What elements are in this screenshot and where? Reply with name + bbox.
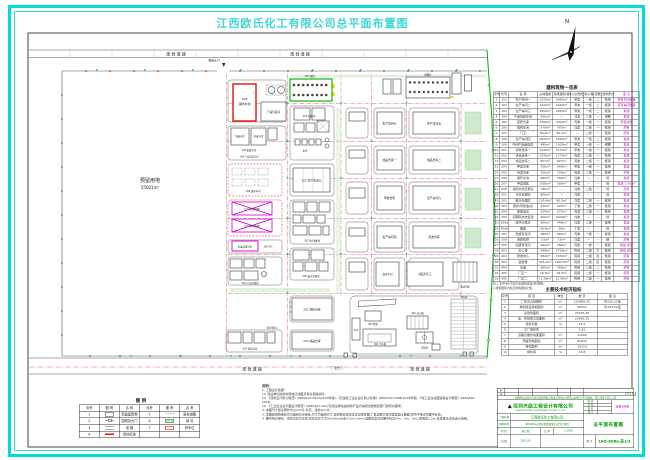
maintenance-block: 106 维修车间 xyxy=(232,168,268,193)
drawing-number: 18Q-806a-总1/3 xyxy=(596,435,635,449)
workshop-103: 103 生产车间三 xyxy=(293,168,330,192)
legend-no: 7 xyxy=(139,425,159,432)
svg-text:303 锅炉房: 303 锅炉房 xyxy=(302,114,316,118)
svg-text:生产车间七: 生产车间七 xyxy=(383,122,397,126)
road-label-top: 规 划 道 路 xyxy=(290,51,310,57)
north-label: N xyxy=(565,19,569,25)
svg-text:401 办公楼: 401 办公楼 xyxy=(411,311,424,315)
svg-text:丙类仓库: 丙类仓库 xyxy=(428,235,439,239)
svg-text:302 废水处理站: 302 废水处理站 xyxy=(302,274,320,278)
notes-panel: 说明: 1. 工程设计依据:(1) 建设单位提供的用地红线图及有关基础资料。(2… xyxy=(262,383,482,421)
gate-top-marker xyxy=(222,63,226,67)
equipment-cluster: 305 雨水收集池 xyxy=(293,202,330,243)
svg-text:成品仓库二: 成品仓库二 xyxy=(427,158,441,162)
svg-text:停车场: 停车场 xyxy=(461,295,468,299)
svg-text:301 污水处理站: 301 污水处理站 xyxy=(241,281,259,285)
list-item: (2) 《建筑设计防火规范》GB50016-2014(2018年版),《石油化工… xyxy=(262,397,482,405)
table-row: 10绿化率%18.8 xyxy=(501,350,628,356)
svg-text:104 产品包装车间: 104 产品包装车间 xyxy=(240,155,260,159)
legend-name: 原有道路 xyxy=(180,411,200,418)
production-grid: 生产车间七 生产车间五 成品仓库一 成品仓库二 甲类仓库 生产车间六 生产车间四… xyxy=(376,112,477,289)
svg-text:202 成品仓库: 202 成品仓库 xyxy=(303,339,321,343)
svg-text:208: 208 xyxy=(242,97,248,101)
legend-no: 4 xyxy=(79,431,99,438)
svg-text:404 汽车衡: 404 汽车衡 xyxy=(374,342,387,346)
indicators-table: 序号项 目单位数 值备 注1厂区总占地面积m²150806.45约226.21亩… xyxy=(501,294,628,356)
list-item: 4. 图中所示绿化、停车位仅为示意,停车位尺寸为3m×6m(大车3.5m×10m… xyxy=(262,417,482,421)
parking-symbol xyxy=(160,425,180,432)
road-label-top-left: 规 划 道 路 xyxy=(166,51,186,57)
svg-text:成品仓库一: 成品仓库一 xyxy=(383,158,397,162)
company-logo-icon: ▲ xyxy=(508,403,512,409)
svg-text:105 配套仓库: 105 配套仓库 xyxy=(242,148,257,152)
stamp-cell: 出图专用章 xyxy=(612,400,635,415)
svg-text:篮球场: 篮球场 xyxy=(421,346,428,350)
no-label: 图 号 xyxy=(584,435,597,449)
legend-no: 1 xyxy=(79,411,99,418)
svg-text:106 维修车间: 106 维修车间 xyxy=(246,189,261,193)
svg-text:306 307: 306 307 xyxy=(263,246,273,249)
legend-title: 图 例 xyxy=(79,397,203,404)
svg-text:103 生产车间三: 103 生产车间三 xyxy=(301,179,321,183)
road-label-bottom-2: 规 划 道 路 xyxy=(410,366,430,372)
legend-no: 5 xyxy=(139,411,159,418)
legend-name: 新建建筑物 xyxy=(119,411,139,418)
narrow-col-buildings xyxy=(349,112,365,272)
boiler-cluster: 303 锅炉房 泵房 xyxy=(294,108,329,153)
drawing-name: 总平面布置图 xyxy=(584,414,635,436)
legend-empty xyxy=(180,431,200,438)
svg-text:203 成品仓库: 203 成品仓库 xyxy=(243,347,258,351)
packing-building: 产品包装间 xyxy=(261,102,286,121)
hazwaste-warehouses: 危废仓库 危废仓库 105 配套仓库 104 产品包装车间 xyxy=(231,128,277,159)
svg-text:生产车间六: 生产车间六 xyxy=(427,196,441,200)
svg-text:甲类仓库: 甲类仓库 xyxy=(384,196,395,200)
svg-text:泵房: 泵房 xyxy=(303,149,308,153)
svg-text:维修车间: 维修车间 xyxy=(382,272,393,276)
warehouse-201: 201 原料仓库 xyxy=(289,298,332,320)
gate-top-label: 预留大门 xyxy=(208,59,219,63)
reserved-workshops: 生产车间(预留) 生产车间(预留) xyxy=(232,202,272,232)
blank-cell xyxy=(541,435,585,449)
table-row: 1101生产车间一1220m²2440m²甲类一级二框架原有车间改造 xyxy=(493,97,639,103)
svg-text:储罐区: 储罐区 xyxy=(425,73,433,77)
campus: 402 403 食堂 404 汽车衡 401 办公楼 篮球场 xyxy=(352,295,476,350)
table-row: 2102生产车间二1220m²2440m²甲类一级二框架原有车间改造 xyxy=(493,103,639,109)
wastewater-cluster: 302 废水处理站 xyxy=(293,250,328,278)
svg-text:消防水池: 消防水池 xyxy=(238,101,250,106)
building-list-panel: 建构筑物一览表 序号代号名 称占地面积建筑面积/容积火灾危险性耐火等级层数结构形… xyxy=(493,84,631,291)
legend-name: 围墙及大门 xyxy=(119,418,139,425)
warehouse-202: 202 成品仓库 xyxy=(292,332,332,349)
date-label: 日 期 xyxy=(498,435,512,449)
legend-name: 用地红线 xyxy=(119,431,139,438)
notes-lines: 1. 工程设计依据:(1) 建设单位提供的用地红线图及有关基础资料。(2) 《建… xyxy=(262,389,482,421)
legend-panel: 图 例 序号 图 例 名 称 序号 图 例 名 称 1 新建建筑物 5 原有道路… xyxy=(79,397,203,438)
company-subname: SHENZHEN TIANLI ENGINEERING DESIGN CO.,L… xyxy=(515,409,565,412)
old-road-symbol xyxy=(160,411,180,418)
legend-table: 序号 图 例 名 称 序号 图 例 名 称 1 新建建筑物 5 原有道路 2 围… xyxy=(79,405,200,438)
new-building-symbol xyxy=(99,411,119,418)
svg-text:电动车棚: 电动车棚 xyxy=(461,285,471,289)
building-list-title: 建构筑物一览表 xyxy=(493,84,631,91)
tank-farm: 207 罐区 xyxy=(290,74,335,101)
indicators-title: 主要技术经济指标 xyxy=(501,286,626,293)
sewage-cluster: 301 污水处理站 xyxy=(230,259,267,285)
notes-title: 说明: xyxy=(262,383,482,388)
date-value: 2021.06 xyxy=(511,435,542,449)
legend-name: 停车位 xyxy=(180,425,200,432)
svg-text:危废仓库: 危废仓库 xyxy=(235,134,245,138)
legend-name: 道 路 xyxy=(119,425,139,432)
svg-text:生产车间五: 生产车间五 xyxy=(427,122,441,126)
hazwaste-storage: 危废品暂存区 306 307 xyxy=(232,241,273,251)
svg-text:成品仓库三: 成品仓库三 xyxy=(419,272,432,276)
north-arrow-icon xyxy=(552,23,583,64)
water-tanks xyxy=(266,85,286,95)
svg-text:危废仓库: 危废仓库 xyxy=(254,134,264,138)
reserve-area: 55601m² xyxy=(141,185,160,190)
svg-text:403 食堂: 403 食堂 xyxy=(368,322,378,326)
title-block: ▲ ▲ 2021.6 该图纸及其设计内容归深圳天励工程设计有限公司所有,未经许可… xyxy=(497,388,634,448)
legend-empty xyxy=(139,431,159,438)
company-cell: ▲深圳天励工程设计有限公司 SHENZHEN TIANLI ENGINEERIN… xyxy=(498,400,585,415)
road-symbol xyxy=(99,425,119,432)
building-list-table: 序号代号名 称占地面积建筑面积/容积火灾危险性耐火等级层数结构形式备 注1101… xyxy=(493,92,640,283)
table-row: 33406门卫二12.96m²12.96m²民用二级一框架原有 xyxy=(493,276,639,282)
svg-text:产品包装间: 产品包装间 xyxy=(267,110,280,114)
svg-text:雨水排放口: 雨水排放口 xyxy=(267,326,278,330)
gate-bottom-label: 厂区大门 xyxy=(331,366,342,370)
drawing-sheet: 江西欧氏化工有限公司总平面布置图 规 划 道 路 规 划 道 路 xyxy=(0,0,650,460)
legend-no: 3 xyxy=(79,425,99,432)
svg-text:207 罐区: 207 罐区 xyxy=(305,74,316,78)
warehouse-203-cluster: 203 成品仓库 雨水排放口 xyxy=(228,326,277,351)
svg-text:生产车间(预留): 生产车间(预留) xyxy=(244,207,260,211)
svg-text:201 原料仓库: 201 原料仓库 xyxy=(303,308,321,312)
svg-text:402: 402 xyxy=(354,329,359,332)
road-label-bottom: 规 划 道 路 xyxy=(242,366,262,372)
top-road xyxy=(29,50,487,58)
svg-text:305 雨水收集池: 305 雨水收集池 xyxy=(304,239,321,243)
indicators-panel: 主要技术经济指标 序号项 目单位数 值备 注1厂区总占地面积m²150806.4… xyxy=(501,286,626,356)
svg-text:生产车间四: 生产车间四 xyxy=(383,235,397,239)
reserve-label: 预留用地 xyxy=(140,177,160,184)
legend-empty xyxy=(160,431,180,438)
svg-text:生产车间(预留): 生产车间(预留) xyxy=(244,224,260,228)
fire-water-building: 208 消防水池 xyxy=(233,84,256,121)
red-line-symbol xyxy=(99,431,119,438)
svg-text:危废品暂存区: 危废品暂存区 xyxy=(238,245,253,249)
